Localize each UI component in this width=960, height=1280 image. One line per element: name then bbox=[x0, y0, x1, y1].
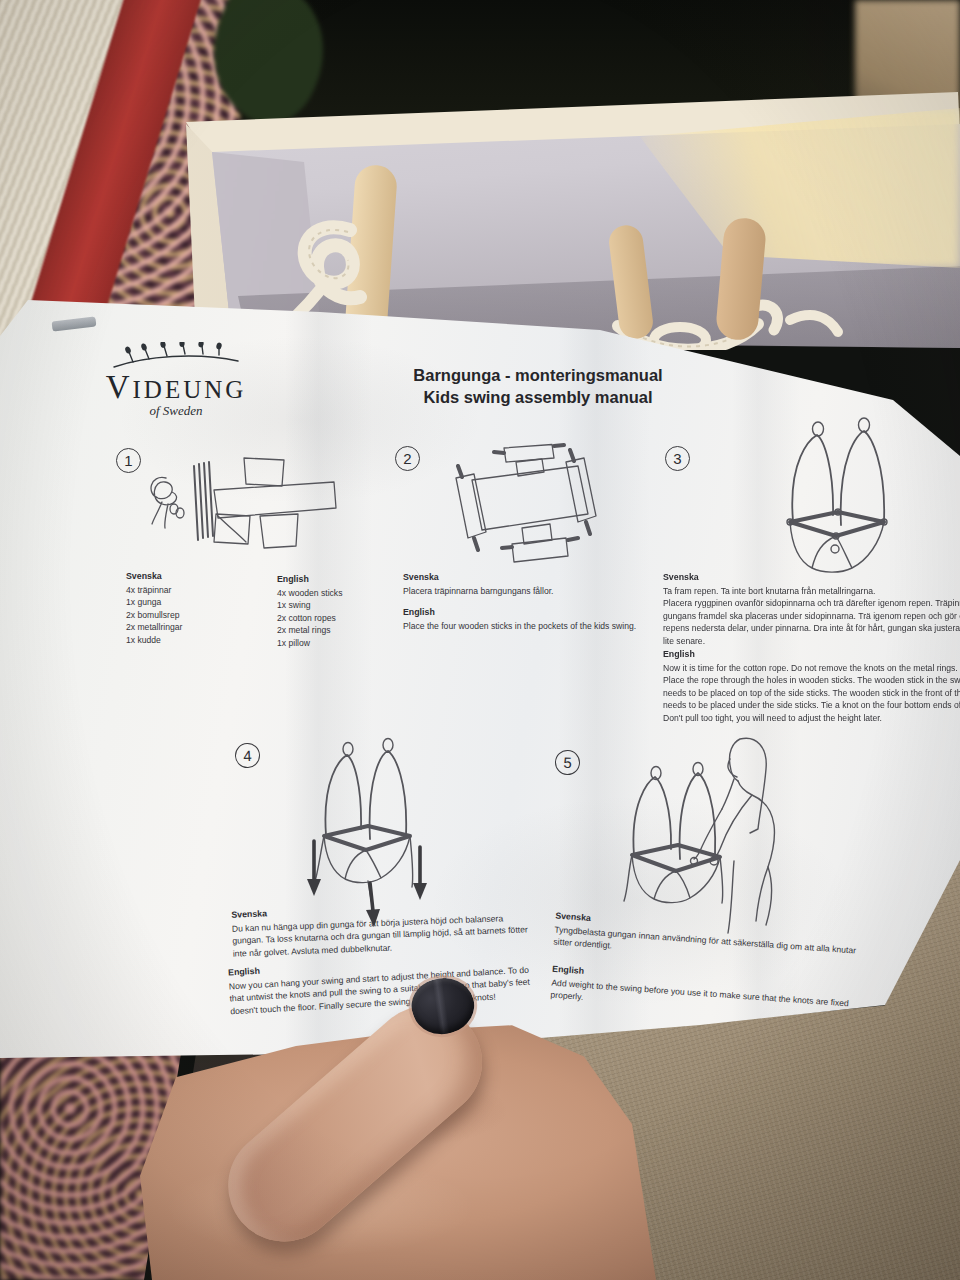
instruction-text: Place the four wooden sticks in the pock… bbox=[403, 620, 636, 632]
list-item: 2x cotton ropes bbox=[277, 612, 342, 624]
brand-logo: VIDEUNG of Sweden bbox=[96, 342, 256, 419]
list-item: 2x metal rings bbox=[277, 624, 342, 636]
sticks-in-pockets-drawing bbox=[448, 444, 598, 572]
swedish-heading: Svenska bbox=[663, 572, 960, 582]
weight-test-drawing bbox=[622, 733, 817, 938]
step-5-badge: 5 bbox=[555, 750, 581, 776]
swing-parts-drawing bbox=[138, 452, 338, 552]
step-2-swedish-text: Svenska Placera träpinnarna barngungans … bbox=[403, 572, 554, 597]
adjust-height-drawing bbox=[288, 735, 463, 930]
photo-scene: VIDEUNG of Sweden Barngunga - monterings… bbox=[0, 0, 960, 1280]
instruction-text: Placera träpinnarna barngungans fållor. bbox=[403, 585, 554, 597]
list-item: 1x kudde bbox=[126, 634, 182, 646]
willow-branch-icon bbox=[111, 342, 241, 372]
assembled-swing-drawing bbox=[778, 418, 910, 583]
list-item: 1x gunga bbox=[126, 596, 182, 608]
step-5-english-text: English Add weight to the swing before y… bbox=[550, 964, 850, 1023]
list-item: 2x bomullsrep bbox=[126, 609, 182, 621]
step-1-english-list: English 4x wooden sticks 1x swing 2x cot… bbox=[277, 574, 342, 649]
instruction-text: Now it is time for the cotton rope. Do n… bbox=[663, 662, 960, 724]
swedish-heading: Svenska bbox=[403, 572, 554, 582]
step-1-swedish-list: Svenska 4x träpinnar 1x gunga 2x bomulls… bbox=[126, 571, 182, 646]
step-4-swedish-text: Svenska Du kan nu hänga upp din gunga fö… bbox=[231, 898, 528, 960]
manual-title: Barngunga - monteringsmanual Kids swing … bbox=[368, 364, 708, 408]
swedish-heading: Svenska bbox=[126, 571, 182, 581]
step-4-badge: 4 bbox=[235, 743, 261, 769]
list-item: 2x metallringar bbox=[126, 621, 182, 633]
step-2-english-text: English Place the four wooden sticks in … bbox=[403, 607, 636, 632]
paper-tear-mark bbox=[52, 316, 97, 331]
title-swedish: Barngunga - monteringsmanual bbox=[368, 364, 708, 386]
list-item: 4x träpinnar bbox=[126, 584, 182, 596]
list-item: 1x swing bbox=[277, 599, 342, 611]
step-4-english-text: English Now you can hang your swing and … bbox=[228, 951, 531, 1018]
step-2-badge: 2 bbox=[395, 446, 420, 471]
english-heading: English bbox=[663, 649, 960, 659]
step-3-badge: 3 bbox=[665, 446, 690, 471]
english-heading: English bbox=[403, 607, 636, 617]
step-3-swedish-text: Svenska Ta fram repen. Ta inte bort knut… bbox=[663, 572, 960, 647]
brand-name: VIDEUNG bbox=[96, 369, 256, 406]
english-heading: English bbox=[277, 574, 342, 584]
list-item: 4x wooden sticks bbox=[277, 587, 342, 599]
step-3-english-text: English Now it is time for the cotton ro… bbox=[663, 649, 960, 724]
title-english: Kids swing assembly manual bbox=[368, 386, 708, 408]
list-item: 1x pillow bbox=[277, 637, 342, 649]
instruction-text: Ta fram repen. Ta inte bort knutarna frå… bbox=[663, 585, 960, 647]
